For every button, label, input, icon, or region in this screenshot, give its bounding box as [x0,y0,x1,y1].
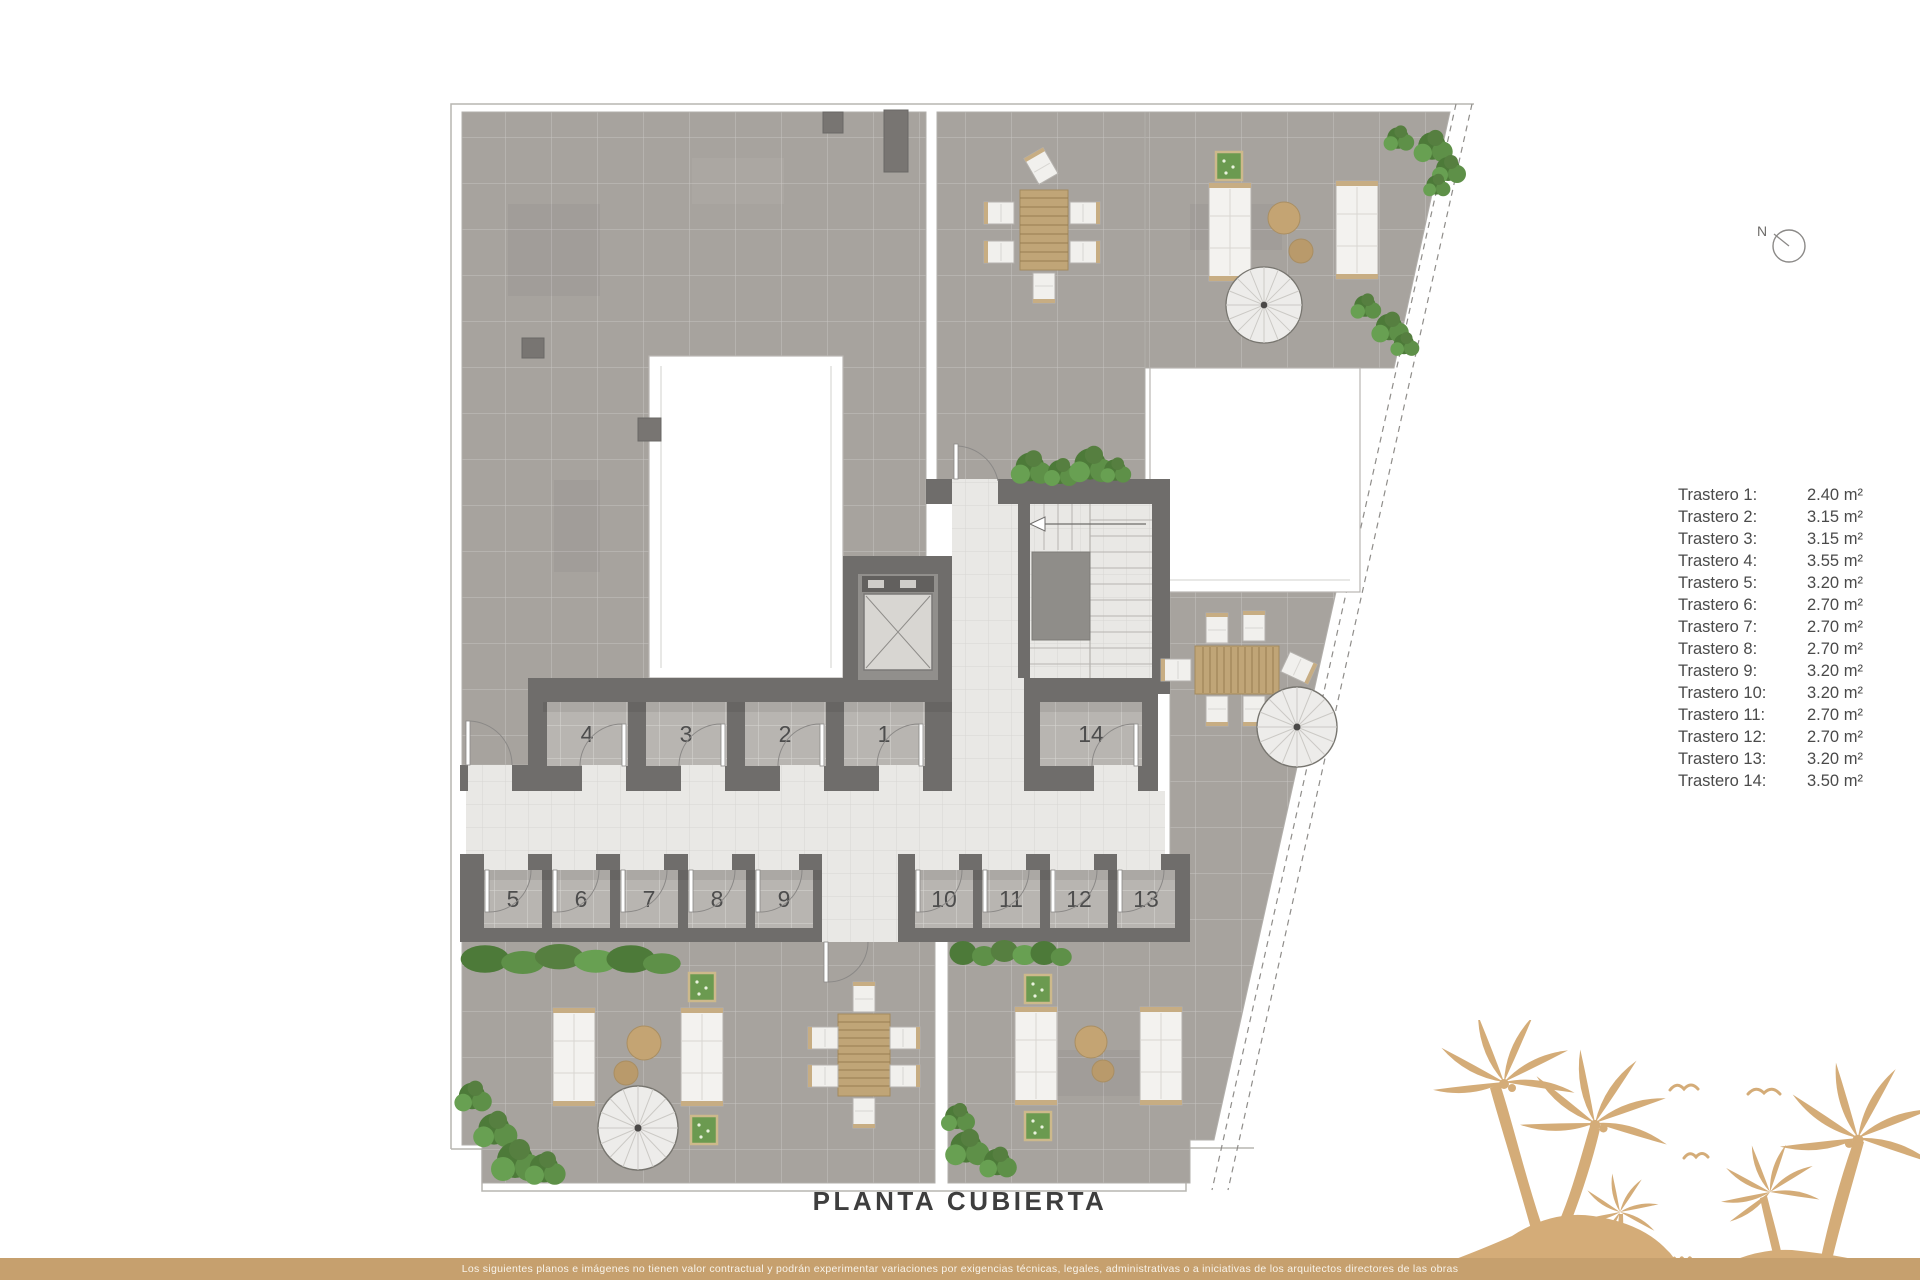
chair [984,241,1014,263]
chair [890,1027,920,1049]
room-number-label: 6 [575,886,588,912]
legend-label: Trastero 1: [1678,486,1757,504]
page-title: PLANTA CUBIERTA [640,1186,1280,1217]
room-number-label: 9 [778,886,791,912]
legend-value: 3.15 m² [1807,506,1863,528]
chair [1070,241,1100,263]
legend-label: Trastero 14: [1678,772,1766,790]
chair [984,202,1014,224]
legend-row: Trastero 10:3.20 m² [1678,682,1868,704]
chair [1206,696,1228,726]
chair [808,1027,838,1049]
bird-icon [1670,1085,1698,1090]
room-number-label: 10 [931,886,957,912]
skylight-void-left [649,356,843,678]
umbrella [598,1086,678,1170]
legend: Trastero 1:2.40 m² Trastero 2:3.15 m² Tr… [1678,484,1868,792]
legend-label: Trastero 3: [1678,530,1757,548]
legend-row: Trastero 8:2.70 m² [1678,638,1868,660]
legend-label: Trastero 13: [1678,750,1766,768]
chimney [884,110,908,172]
coffee-table [627,1026,661,1060]
skylight-void-right [1150,368,1360,592]
legend-value: 3.15 m² [1807,528,1863,550]
footer-bar: Los siguientes planos e imágenes no tien… [0,1258,1920,1280]
legend-row: Trastero 9:3.20 m² [1678,660,1868,682]
north-label: N [1757,223,1767,239]
dining-table [838,1014,890,1096]
legend-value: 3.20 m² [1807,748,1863,770]
legend-label: Trastero 7: [1678,618,1757,636]
sofa [1209,183,1251,281]
palm-tree [1780,1061,1920,1264]
bird-icon [1684,1154,1708,1159]
page: 1 2 3 4 14 5 6 7 8 9 [0,0,1920,1280]
legend-label: Trastero 4: [1678,552,1757,570]
room-number-label: 7 [643,886,656,912]
disclaimer-text: Los siguientes planos e imágenes no tien… [0,1258,1920,1280]
legend-value: 3.50 m² [1807,770,1863,792]
planter [1025,1112,1051,1140]
legend-value: 2.40 m² [1807,484,1863,506]
pillar [638,418,661,441]
legend-row: Trastero 1:2.40 m² [1678,484,1868,506]
umbrella [1226,267,1302,343]
sofa [1015,1007,1057,1105]
legend-value: 2.70 m² [1807,638,1863,660]
legend-label: Trastero 2: [1678,508,1757,526]
sofa [553,1008,595,1106]
legend-label: Trastero 10: [1678,684,1766,702]
coffee-table [1289,239,1313,263]
chair [853,982,875,1012]
palm-tree [1520,1050,1668,1228]
legend-value: 3.20 m² [1807,682,1863,704]
room-number-label: 13 [1133,886,1159,912]
legend-label: Trastero 11: [1678,706,1765,724]
chair [853,1098,875,1128]
elevator [858,574,938,680]
legend-row: Trastero 13:3.20 m² [1678,748,1868,770]
chair [1070,202,1100,224]
umbrella [1257,687,1337,767]
dining-table [1020,190,1068,270]
legend-label: Trastero 6: [1678,596,1757,614]
chair [890,1065,920,1087]
legend-row: Trastero 3:3.15 m² [1678,528,1868,550]
legend-value: 2.70 m² [1807,594,1863,616]
dining-table [1195,646,1279,694]
palm-trees-decoration [1430,1020,1920,1280]
coffee-table [1075,1026,1107,1058]
room-number-label: 8 [711,886,724,912]
legend-row: Trastero 4:3.55 m² [1678,550,1868,572]
coffee-table [1268,202,1300,234]
sofa [1336,181,1378,279]
legend-value: 2.70 m² [1807,704,1863,726]
chimney [823,112,843,133]
legend-label: Trastero 5: [1678,574,1757,592]
bird-icon [1748,1089,1780,1094]
legend-row: Trastero 11:2.70 m² [1678,704,1868,726]
room-number-label: 5 [507,886,520,912]
planter [1025,975,1051,1003]
chair [1161,659,1191,681]
planter [689,973,715,1001]
legend-row: Trastero 2:3.15 m² [1678,506,1868,528]
compass: N [1757,223,1805,262]
legend-value: 2.70 m² [1807,726,1863,748]
legend-label: Trastero 8: [1678,640,1757,658]
legend-row: Trastero 14:3.50 m² [1678,770,1868,792]
palm-tree [1721,1144,1820,1258]
legend-row: Trastero 6:2.70 m² [1678,594,1868,616]
pillar [522,338,544,358]
legend-value: 3.55 m² [1807,550,1863,572]
sofa [1140,1007,1182,1105]
room-number-label: 14 [1078,721,1104,747]
legend-label: Trastero 9: [1678,662,1757,680]
chair [1033,273,1055,303]
chair [1243,611,1265,641]
room-number-label: 11 [999,886,1023,912]
chair [1206,613,1228,643]
planter [691,1116,717,1144]
room-number-label: 12 [1066,886,1092,912]
legend-value: 3.20 m² [1807,660,1863,682]
bird-icons [1670,1085,1780,1158]
legend-row: Trastero 5:3.20 m² [1678,572,1868,594]
legend-row: Trastero 7:2.70 m² [1678,616,1868,638]
coffee-table [614,1061,638,1085]
coffee-table [1092,1060,1114,1082]
legend-label: Trastero 12: [1678,728,1766,746]
sofa [681,1008,723,1106]
planter [1216,152,1242,180]
chair [808,1065,838,1087]
legend-value: 3.20 m² [1807,572,1863,594]
legend-row: Trastero 12:2.70 m² [1678,726,1868,748]
legend-value: 2.70 m² [1807,616,1863,638]
